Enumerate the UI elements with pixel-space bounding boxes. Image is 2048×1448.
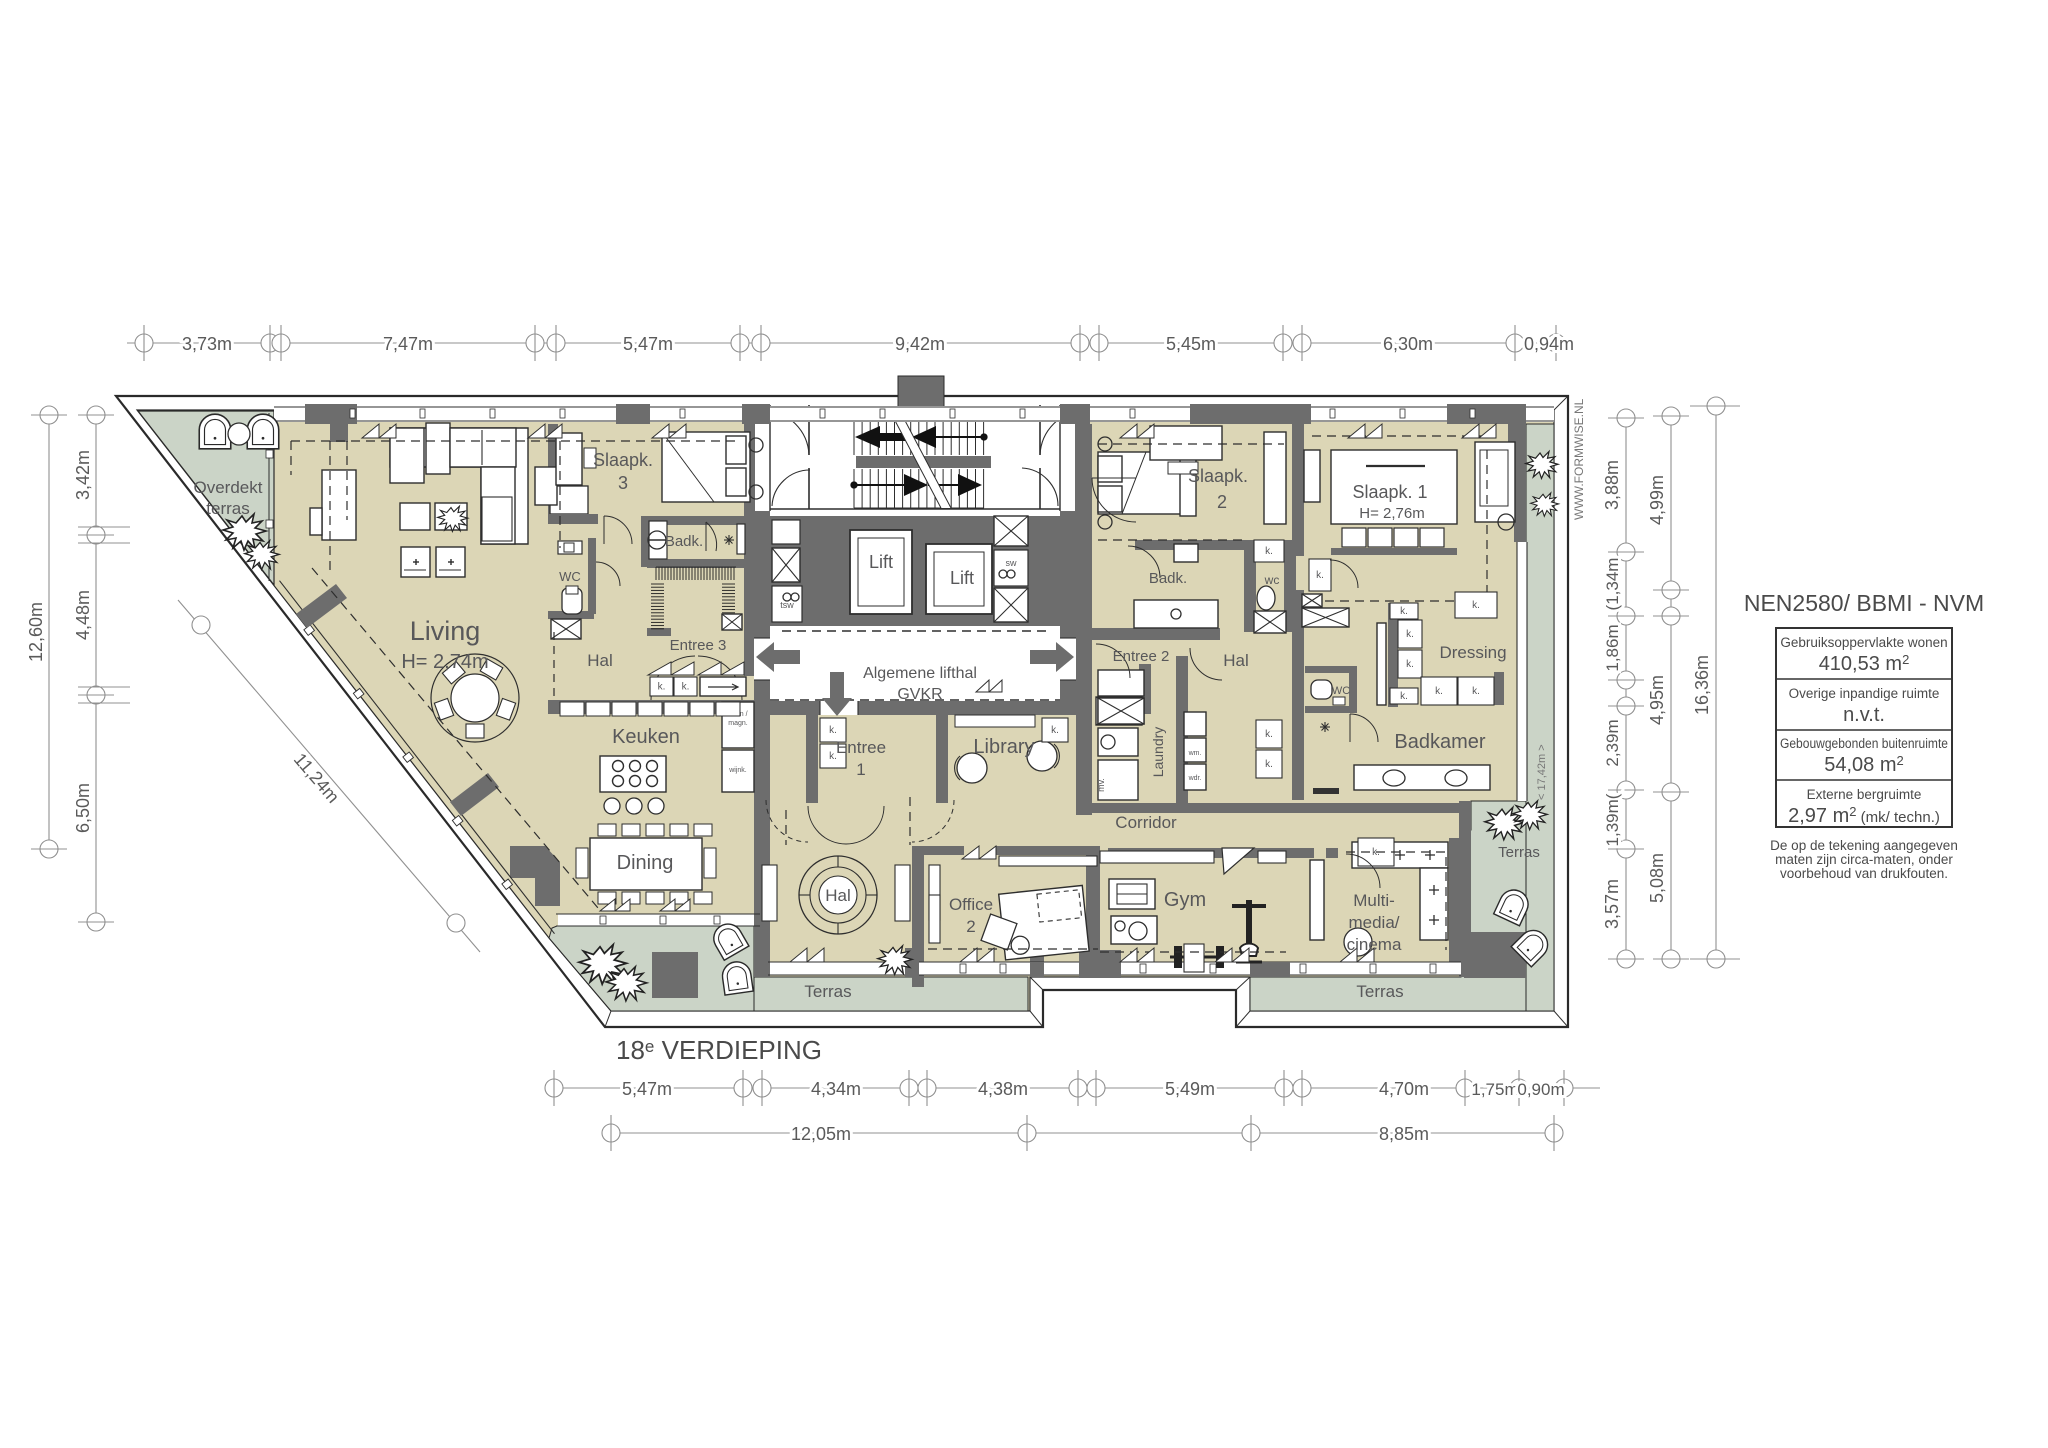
svg-text:16,36m: 16,36m: [1692, 655, 1712, 715]
svg-text:H= 2,76m: H= 2,76m: [1359, 505, 1424, 522]
svg-text:WWW.FORMWISE.NL: WWW.FORMWISE.NL: [1572, 398, 1586, 520]
svg-text:Hal: Hal: [1223, 651, 1249, 670]
svg-text:k.: k.: [682, 682, 690, 693]
svg-text:Multi-: Multi-: [1353, 891, 1395, 910]
svg-text:Badk.: Badk.: [665, 533, 703, 550]
svg-text:n.v.t.: n.v.t.: [1843, 704, 1885, 726]
svg-text:4,38m: 4,38m: [978, 1079, 1028, 1099]
svg-text:Hal: Hal: [825, 886, 851, 905]
svg-text:(1,34m: (1,34m: [1603, 558, 1622, 611]
svg-text:Lift: Lift: [950, 568, 974, 588]
svg-text:Algemene lifthal: Algemene lifthal: [863, 665, 977, 682]
svg-text:WC: WC: [1332, 685, 1350, 697]
svg-text:4,70m: 4,70m: [1379, 1079, 1429, 1099]
svg-text:Keuken: Keuken: [612, 726, 680, 748]
svg-text:9,42m: 9,42m: [895, 334, 945, 354]
svg-text:GVKR: GVKR: [897, 686, 942, 703]
svg-text:5,45m: 5,45m: [1166, 334, 1216, 354]
svg-text:magn.: magn.: [728, 720, 748, 727]
svg-text:k.: k.: [1400, 606, 1408, 617]
svg-text:Terras: Terras: [804, 982, 851, 1001]
svg-text:5,47m: 5,47m: [622, 1079, 672, 1099]
svg-text:Badk.: Badk.: [1149, 570, 1187, 587]
svg-text:Gym: Gym: [1164, 889, 1206, 911]
svg-text:k.: k.: [1406, 659, 1414, 670]
svg-text:k.: k.: [1435, 686, 1443, 697]
svg-text:2: 2: [966, 917, 975, 936]
svg-text:3,88m: 3,88m: [1602, 460, 1622, 510]
svg-text:Laundry: Laundry: [1150, 727, 1166, 778]
svg-text:Slaapk.: Slaapk.: [1188, 466, 1248, 486]
svg-text:0,90m: 0,90m: [1517, 1080, 1564, 1099]
svg-text:k.: k.: [829, 725, 837, 736]
svg-text:k.: k.: [658, 682, 666, 693]
svg-text:Gebouwgebonden buitenruimte: Gebouwgebonden buitenruimte: [1780, 736, 1948, 751]
svg-text:12,60m: 12,60m: [26, 602, 46, 662]
svg-text:terras: terras: [206, 499, 249, 518]
svg-text:1,86m: 1,86m: [1603, 624, 1622, 671]
svg-text:Slaapk. 1: Slaapk. 1: [1352, 482, 1427, 502]
svg-text:k.: k.: [1472, 600, 1480, 611]
svg-text:Entree 3: Entree 3: [670, 637, 727, 654]
svg-text:1: 1: [856, 760, 865, 779]
svg-text:Lift: Lift: [869, 552, 893, 572]
svg-text:2,39m: 2,39m: [1603, 719, 1622, 766]
svg-text:wdr.: wdr.: [1188, 775, 1202, 782]
svg-text:12,05m: 12,05m: [791, 1124, 851, 1144]
svg-text:6,50m: 6,50m: [73, 783, 93, 833]
svg-text:H= 2,74m: H= 2,74m: [401, 651, 488, 673]
svg-text:Living: Living: [410, 616, 481, 646]
svg-text:Dining: Dining: [617, 852, 674, 874]
svg-text:0,94m: 0,94m: [1524, 334, 1574, 354]
svg-text:mv.: mv.: [1096, 778, 1106, 792]
svg-text:wm.: wm.: [1188, 750, 1202, 757]
svg-text:k.: k.: [1265, 546, 1273, 557]
svg-text:wijnk.: wijnk.: [728, 767, 747, 774]
svg-text:4,99m: 4,99m: [1647, 475, 1667, 525]
svg-text:Terras: Terras: [1356, 982, 1403, 1001]
svg-text:3: 3: [618, 473, 628, 493]
svg-text:4,95m: 4,95m: [1647, 675, 1667, 725]
svg-text:k.: k.: [1265, 729, 1273, 740]
svg-text:Badkamer: Badkamer: [1394, 731, 1485, 753]
svg-text:Hal: Hal: [587, 651, 613, 670]
svg-text:3,42m: 3,42m: [73, 450, 93, 500]
svg-text:wc: wc: [1264, 573, 1280, 587]
svg-text:6,30m: 6,30m: [1383, 334, 1433, 354]
svg-text:k.: k.: [1265, 759, 1273, 770]
svg-text:Entree 2: Entree 2: [1113, 648, 1170, 665]
svg-text:Gebruiksoppervlakte wonen: Gebruiksoppervlakte wonen: [1780, 635, 1947, 650]
svg-text:410,53 m2: 410,53 m2: [1819, 652, 1910, 675]
svg-text:8,85m: 8,85m: [1379, 1124, 1429, 1144]
svg-text:media/: media/: [1348, 913, 1399, 932]
svg-text:5,08m: 5,08m: [1647, 853, 1667, 903]
svg-text:Externe bergruimte: Externe bergruimte: [1807, 787, 1922, 802]
svg-text:4,34m: 4,34m: [811, 1079, 861, 1099]
svg-text:k.: k.: [1051, 725, 1059, 736]
svg-text:54,08 m2: 54,08 m2: [1824, 753, 1904, 776]
svg-text:maten zijn circa-maten, onder: maten zijn circa-maten, onder: [1775, 852, 1953, 867]
svg-text:1,39m(: 1,39m(: [1603, 793, 1622, 846]
svg-text:k.: k.: [1472, 686, 1480, 697]
svg-text:NEN2580/ BBMI - NVM: NEN2580/ BBMI - NVM: [1744, 590, 1984, 616]
svg-text:< 17,42m >: < 17,42m >: [1536, 744, 1548, 800]
svg-text:5,49m: 5,49m: [1165, 1079, 1215, 1099]
svg-text:4,48m: 4,48m: [73, 590, 93, 640]
svg-text:3,73m: 3,73m: [182, 334, 232, 354]
svg-text:Entree: Entree: [836, 738, 886, 757]
svg-text:Dressing: Dressing: [1439, 643, 1506, 662]
svg-text:2: 2: [1217, 492, 1227, 512]
svg-text:Terras: Terras: [1498, 844, 1540, 861]
svg-text:Library: Library: [973, 736, 1034, 758]
svg-text:cinema: cinema: [1347, 935, 1402, 954]
svg-text:Slaapk.: Slaapk.: [593, 450, 653, 470]
svg-text:k.: k.: [1400, 691, 1408, 702]
svg-text:5,47m: 5,47m: [623, 334, 673, 354]
svg-text:WC: WC: [559, 569, 581, 584]
svg-text:3,57m: 3,57m: [1602, 879, 1622, 929]
svg-text:sw: sw: [1006, 558, 1018, 568]
svg-text:voorbehoud van drukfouten.: voorbehoud van drukfouten.: [1780, 866, 1948, 881]
svg-text:k.: k.: [1316, 570, 1324, 581]
svg-text:k.: k.: [1406, 629, 1414, 640]
svg-text:Overdekt: Overdekt: [194, 478, 263, 497]
svg-text:1,75m: 1,75m: [1471, 1080, 1518, 1099]
svg-text:De op de tekening aangegeven: De op de tekening aangegeven: [1770, 838, 1958, 853]
svg-text:Office: Office: [949, 895, 993, 914]
svg-text:Corridor: Corridor: [1115, 813, 1177, 832]
svg-text:7,47m: 7,47m: [383, 334, 433, 354]
svg-text:Overige inpandige ruimte: Overige inpandige ruimte: [1789, 686, 1940, 701]
